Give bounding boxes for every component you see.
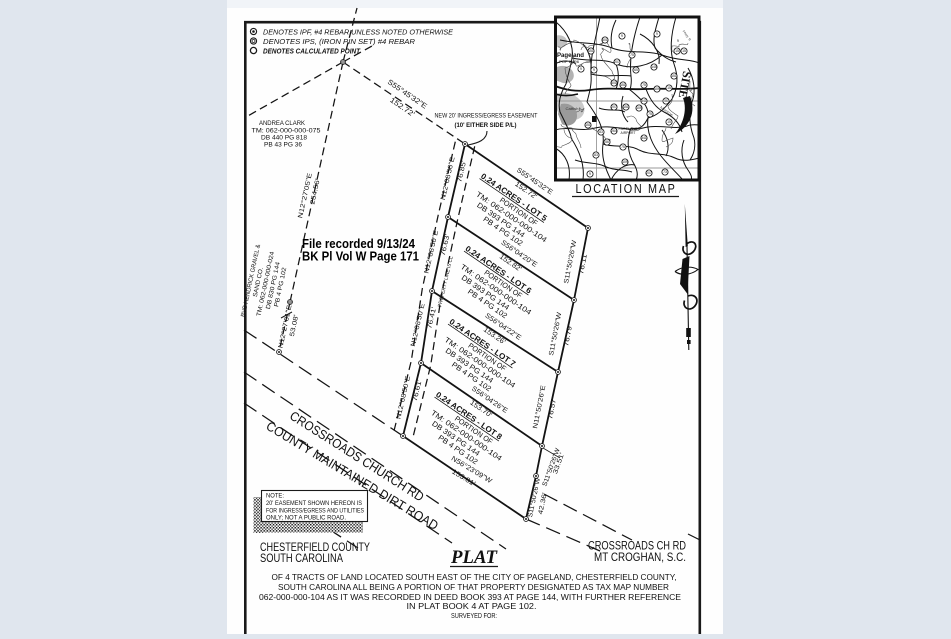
svg-text:BK Pl Vol W Page 171: BK Pl Vol W Page 171 [302, 250, 419, 264]
svg-text:NOTE:: NOTE: [266, 493, 284, 500]
svg-text:65: 65 [634, 68, 638, 72]
svg-text:341: 341 [641, 136, 647, 140]
svg-text:15: 15 [675, 49, 679, 53]
svg-text:341: 341 [641, 99, 647, 103]
svg-text:151: 151 [671, 74, 677, 78]
svg-text:PB 43 PG 36: PB 43 PG 36 [264, 142, 302, 149]
svg-text:151: 151 [588, 49, 594, 53]
svg-text:9: 9 [580, 67, 582, 71]
svg-text:TM: 062-000-000-075: TM: 062-000-000-075 [252, 128, 321, 135]
svg-text:SOUTH CAROLINA ALL BEING A POR: SOUTH CAROLINA ALL BEING A PORTION OF TH… [278, 583, 669, 592]
svg-text:FOR INGRESS/EGRESS AND UTILITI: FOR INGRESS/EGRESS AND UTILITIES [266, 508, 364, 515]
svg-text:ANDREA CLARK: ANDREA CLARK [259, 120, 306, 127]
svg-text:9: 9 [589, 172, 591, 176]
svg-text:83: 83 [599, 130, 603, 134]
svg-text:151: 151 [623, 105, 629, 109]
svg-text:109: 109 [654, 87, 660, 91]
svg-text:601: 601 [611, 81, 617, 85]
svg-text:207: 207 [614, 60, 620, 64]
svg-text:9: 9 [593, 68, 595, 72]
svg-text:151: 151 [620, 83, 626, 87]
svg-text:9: 9 [621, 34, 623, 38]
svg-text:DENOTES CALCULATED POINT: DENOTES CALCULATED POINT [263, 47, 361, 56]
svg-text:75: 75 [630, 53, 634, 57]
svg-text:PLAT: PLAT [450, 547, 498, 568]
svg-text:207: 207 [646, 171, 652, 175]
svg-text:NEW 20' INGRESS/EGRESS EASEMEN: NEW 20' INGRESS/EGRESS EASEMENT [435, 113, 538, 120]
svg-text:AIRPORT: AIRPORT [621, 131, 636, 135]
svg-text:75: 75 [642, 83, 646, 87]
svg-text:ONLY; NOT A PUBLIC ROAD.: ONLY; NOT A PUBLIC ROAD. [266, 515, 346, 522]
svg-text:062-000-000-104 AS IT WAS RECO: 062-000-000-104 AS IT WAS RECORDED IN DE… [259, 593, 682, 602]
svg-text:83: 83 [594, 153, 598, 157]
svg-text:DENOTES IPS, (IRON PIN SET) #4: DENOTES IPS, (IRON PIN SET) #4 REBAR [263, 37, 416, 46]
svg-text:IN PLAT BOOK 4 AT PAGE 102.: IN PLAT BOOK 4 AT PAGE 102. [407, 602, 537, 611]
svg-text:15: 15 [667, 120, 671, 124]
svg-text:(10' EITHER SIDE P/L): (10' EITHER SIDE P/L) [455, 122, 517, 129]
svg-text:MT CROGHAN, S.C.: MT CROGHAN, S.C. [594, 551, 686, 564]
svg-text:SURVEYED FOR:: SURVEYED FOR: [451, 611, 497, 620]
svg-text:207: 207 [611, 105, 617, 109]
svg-text:DB 440 PG 818: DB 440 PG 818 [261, 135, 307, 142]
svg-text:POP 2,496: POP 2,496 [559, 60, 579, 64]
svg-text:264: 264 [611, 129, 617, 133]
svg-text:Catfish: Catfish [566, 107, 579, 111]
svg-text:109: 109 [636, 106, 642, 110]
svg-text:145: 145 [651, 65, 657, 69]
svg-text:109: 109 [622, 160, 628, 164]
svg-text:75: 75 [648, 112, 652, 116]
svg-text:LOCATION MAP: LOCATION MAP [576, 181, 677, 196]
svg-text:9: 9 [677, 39, 679, 43]
svg-text:9: 9 [656, 32, 658, 36]
svg-text:15: 15 [682, 49, 686, 53]
svg-text:56: 56 [605, 140, 609, 144]
svg-text:73: 73 [663, 170, 667, 174]
svg-text:Pageland: Pageland [557, 52, 584, 59]
svg-text:15: 15 [667, 86, 671, 90]
svg-text:151: 151 [585, 123, 591, 127]
svg-text:20' EASEMENT SHOWN HEREON IS: 20' EASEMENT SHOWN HEREON IS [266, 500, 362, 507]
svg-text:SOUTH CAROLINA: SOUTH CAROLINA [260, 552, 343, 565]
svg-text:75: 75 [621, 145, 625, 149]
svg-text:601: 601 [602, 38, 608, 42]
svg-text:OF 4 TRACTS OF LAND LOCATED SO: OF 4 TRACTS OF LAND LOCATED SOUTH EAST O… [272, 573, 677, 582]
svg-text:DENOTES IPF, #4 REBAR UNLESS N: DENOTES IPF, #4 REBAR UNLESS NOTED OTHER… [263, 28, 453, 37]
svg-text:56: 56 [664, 99, 668, 103]
